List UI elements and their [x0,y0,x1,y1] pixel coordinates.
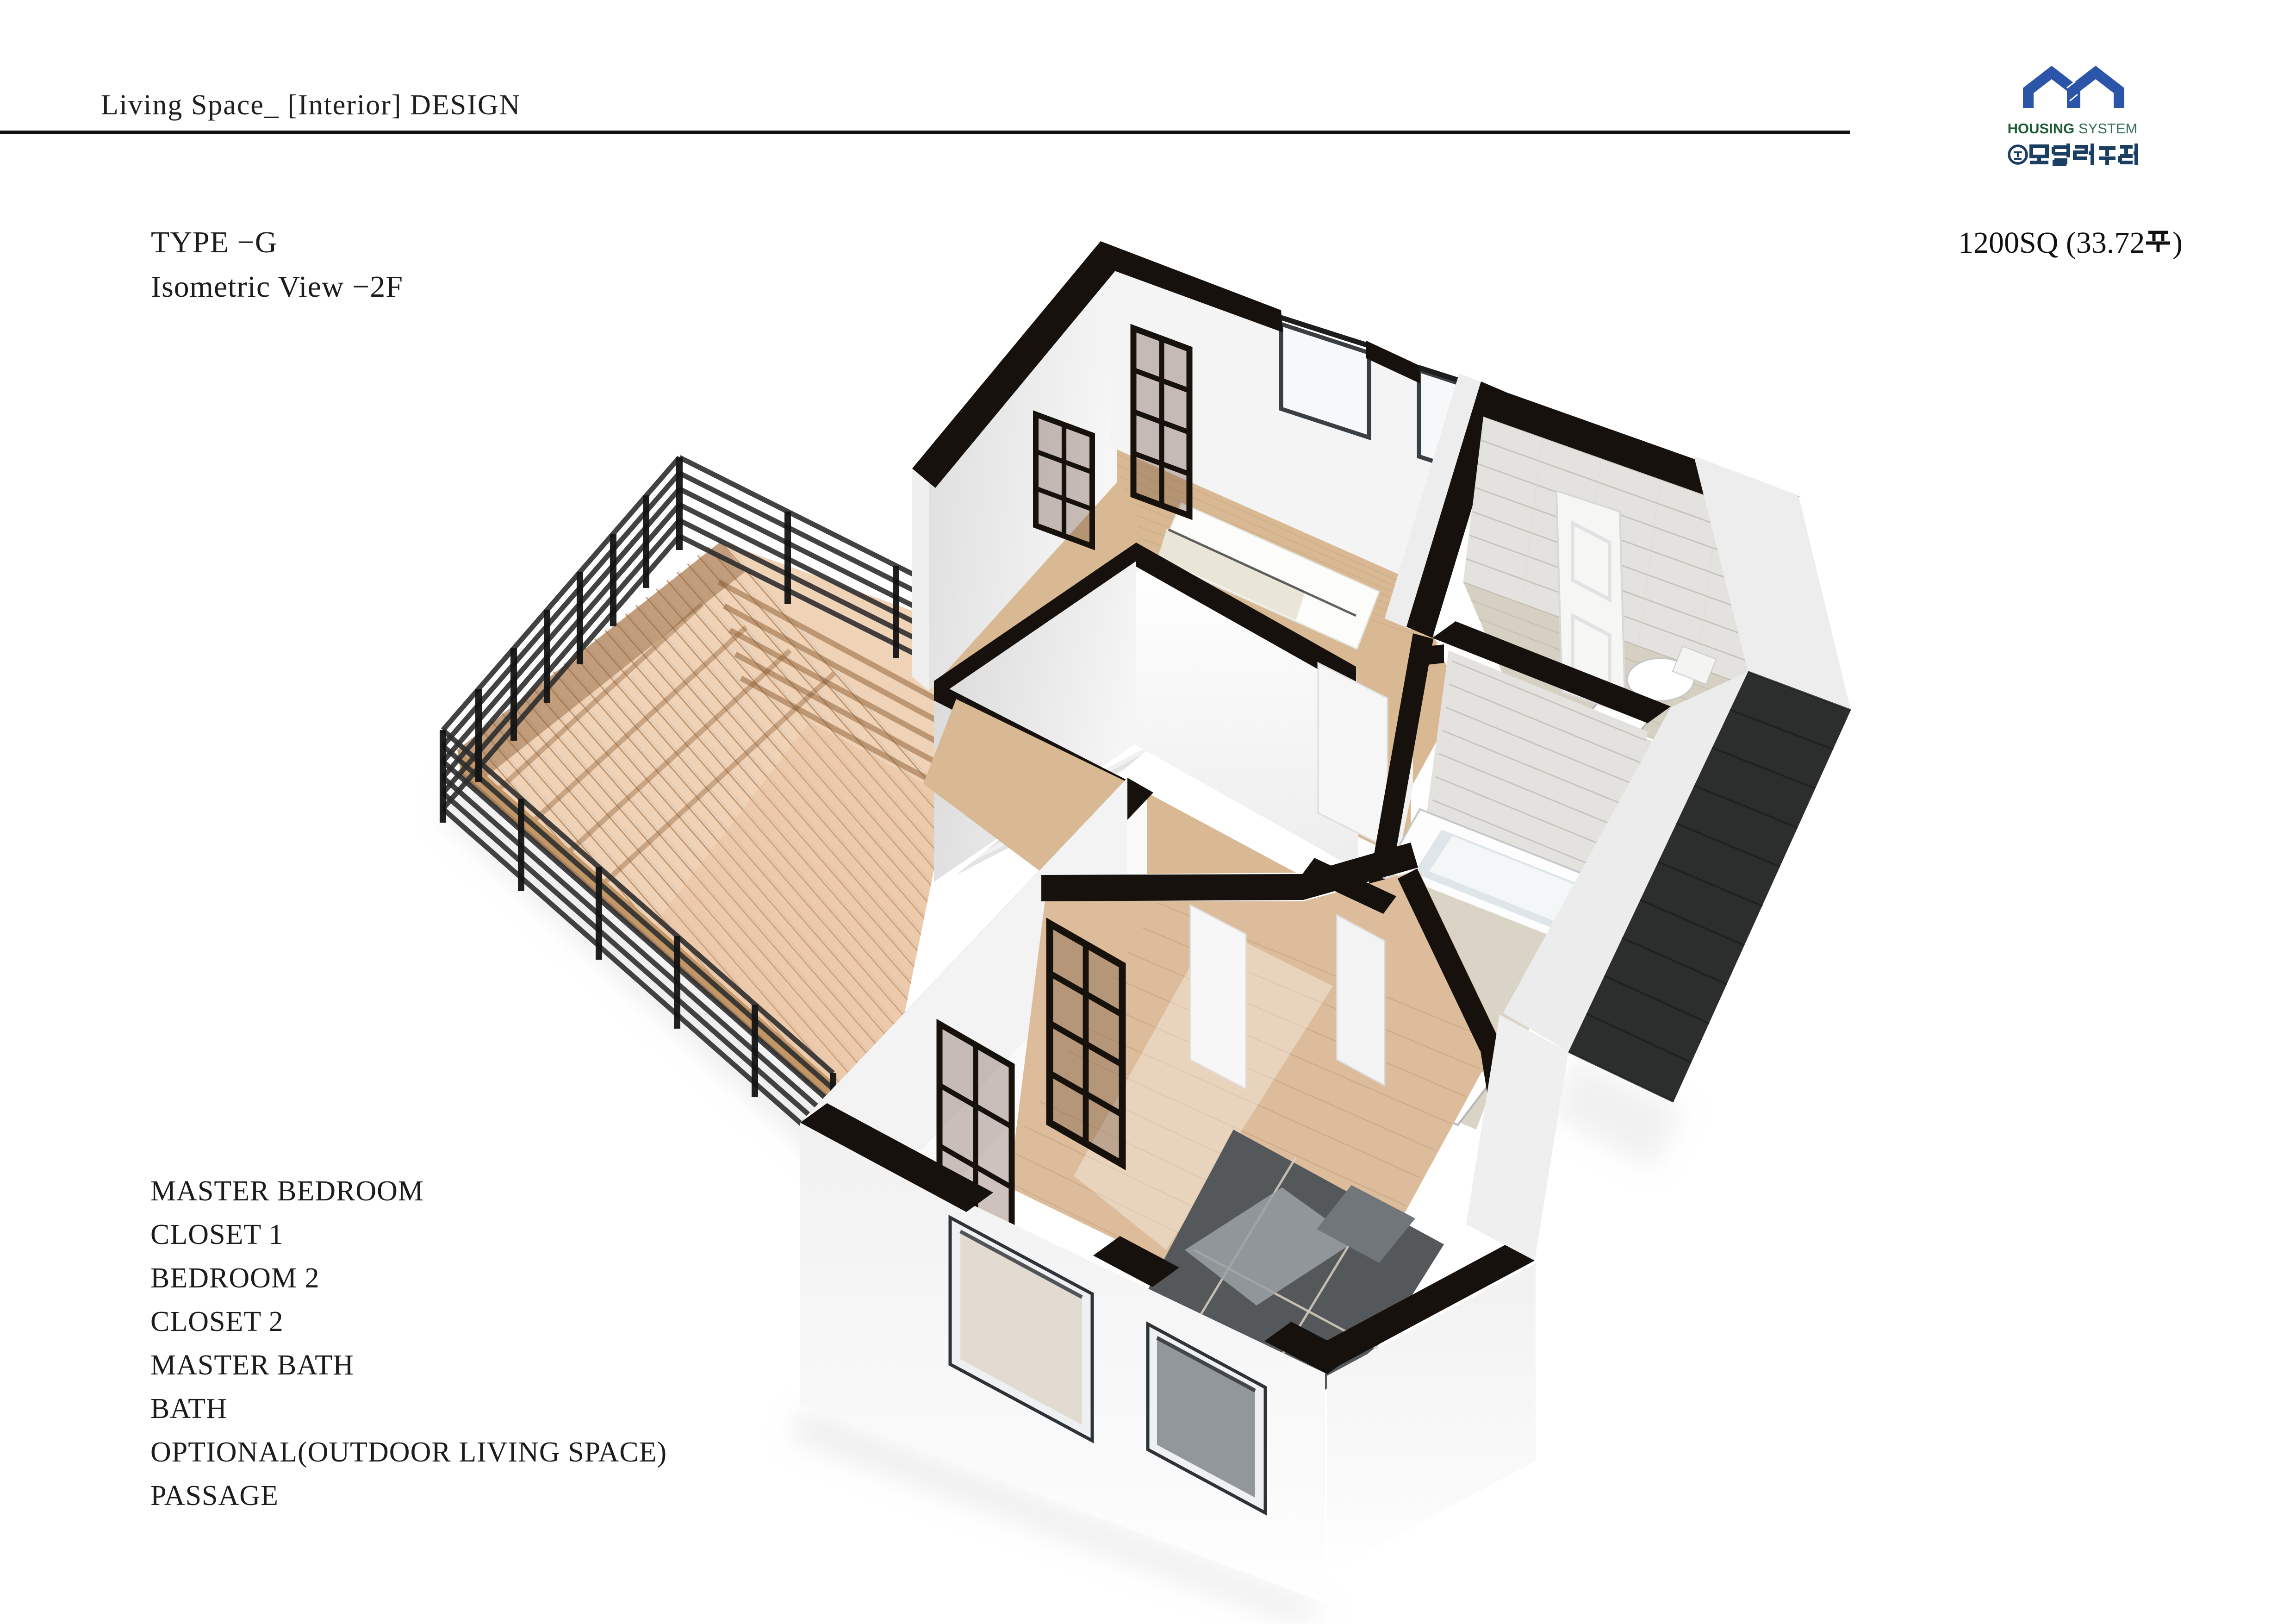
svg-text:TYPE −G: TYPE −G [151,225,277,259]
svg-text:Living Space_ [Interior] DESIG: Living Space_ [Interior] DESIGN [101,89,521,121]
svg-text:PASSAGE: PASSAGE [150,1480,279,1512]
svg-text:CLOSET 2: CLOSET 2 [150,1306,284,1337]
svg-text:BATH: BATH [150,1393,227,1424]
svg-text:MASTER BATH: MASTER BATH [150,1349,354,1381]
svg-text:BEDROOM 2: BEDROOM 2 [150,1262,320,1294]
svg-text:MASTER BEDROOM: MASTER BEDROOM [150,1175,424,1207]
svg-text:): ) [2172,226,2183,260]
svg-text:CLOSET 1: CLOSET 1 [150,1219,284,1250]
svg-text:OPTIONAL(OUTDOOR LIVING SPACE): OPTIONAL(OUTDOOR LIVING SPACE) [150,1437,667,1468]
svg-text:HOUSING SYSTEM: HOUSING SYSTEM [2008,120,2138,137]
svg-text:1200SQ (33.72: 1200SQ (33.72 [1958,226,2145,260]
svg-text:Isometric View −2F: Isometric View −2F [151,270,403,304]
